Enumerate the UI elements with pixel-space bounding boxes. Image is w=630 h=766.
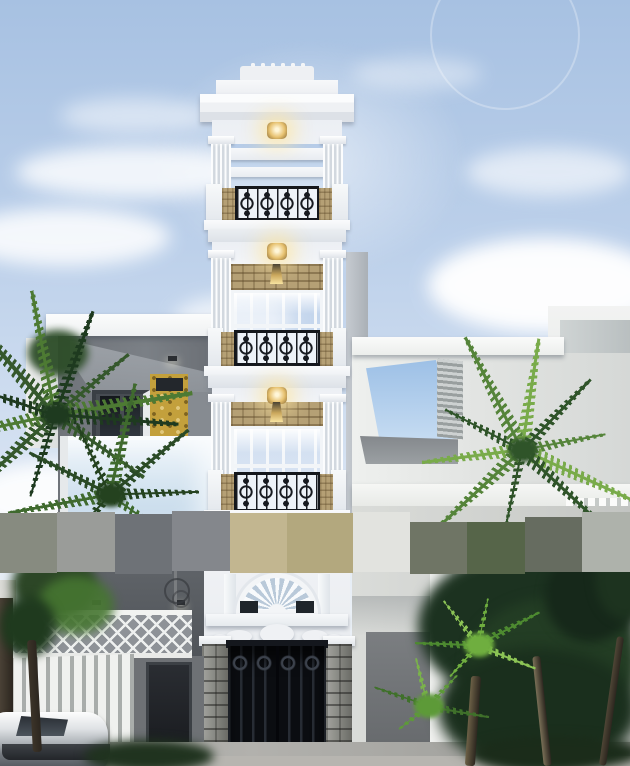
censor-block	[410, 522, 467, 574]
censor-block	[115, 514, 172, 574]
balcony-end-post	[331, 328, 346, 366]
palm-core	[41, 403, 71, 427]
arch-column	[224, 574, 236, 618]
palm-core	[464, 633, 494, 657]
censor-block	[353, 512, 410, 572]
balcony-end-post	[206, 184, 222, 222]
terrace-beam	[230, 167, 324, 177]
pilaster-capital	[208, 394, 234, 402]
stone-railing-post	[222, 188, 235, 221]
roof-cornice	[200, 94, 354, 122]
pilaster-capital	[320, 250, 346, 258]
balcony-end-post	[332, 184, 348, 222]
stone-railing-post	[320, 332, 333, 366]
right-house-louver-panel	[437, 359, 463, 440]
cloud	[60, 98, 210, 134]
architectural-render-scene	[0, 0, 630, 766]
lens-flare-ring	[430, 0, 580, 110]
stone-railing-post	[221, 332, 234, 366]
cloud	[352, 58, 482, 90]
censor-block	[172, 511, 230, 571]
censor-block	[57, 512, 115, 572]
floor-ledge	[208, 230, 346, 242]
palm-core	[508, 438, 538, 462]
tree-canopy	[84, 740, 214, 766]
stone-railing-post	[221, 474, 234, 512]
cloud	[0, 208, 170, 266]
censor-block	[467, 522, 525, 574]
wrought-iron-railing	[234, 472, 320, 512]
floor-ledge	[204, 366, 350, 376]
stone-railing-post	[319, 188, 332, 221]
wrought-iron-railing	[234, 330, 320, 366]
pilaster-capital	[208, 250, 234, 258]
censor-block	[582, 512, 630, 572]
terrace-beam	[230, 148, 324, 160]
censor-block	[0, 513, 57, 573]
right-house-parapet	[352, 337, 564, 355]
pilaster-capital	[208, 136, 234, 144]
transom-pane	[240, 601, 258, 613]
palm-core	[414, 694, 444, 718]
pilaster-capital	[320, 136, 346, 144]
ceiling-downlight	[168, 356, 177, 361]
censor-block	[525, 517, 582, 572]
left-house-accent-window	[156, 378, 183, 391]
censor-block	[230, 513, 287, 573]
ceiling-lamp	[267, 122, 287, 139]
floor-ledge	[204, 220, 350, 230]
pilaster-capital	[320, 394, 346, 402]
wire-coil	[172, 590, 190, 608]
cloud	[466, 148, 630, 196]
ceiling-lamp	[267, 243, 287, 260]
wrought-iron-railing	[235, 186, 319, 221]
palm-core	[96, 483, 126, 507]
arch-column	[318, 574, 330, 618]
ceiling-lamp	[267, 387, 287, 404]
transom-pane	[296, 601, 314, 613]
stone-railing-post	[320, 474, 333, 512]
censor-block	[287, 513, 353, 573]
car-windshield	[16, 716, 68, 736]
balcony-end-post	[331, 470, 346, 512]
